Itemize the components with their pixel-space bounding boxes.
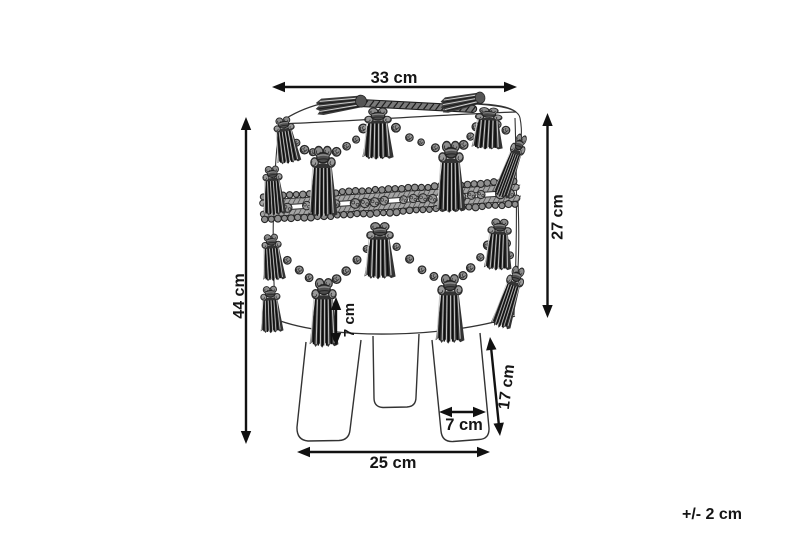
svg-text:27 cm: 27 cm [550,194,567,239]
svg-text:7 cm: 7 cm [341,303,358,337]
svg-text:33 cm: 33 cm [371,69,418,87]
svg-text:44 cm: 44 cm [231,273,248,318]
svg-text:7 cm: 7 cm [445,416,483,434]
svg-text:25 cm: 25 cm [370,454,417,472]
svg-text:+/- 2 cm: +/- 2 cm [682,506,742,523]
